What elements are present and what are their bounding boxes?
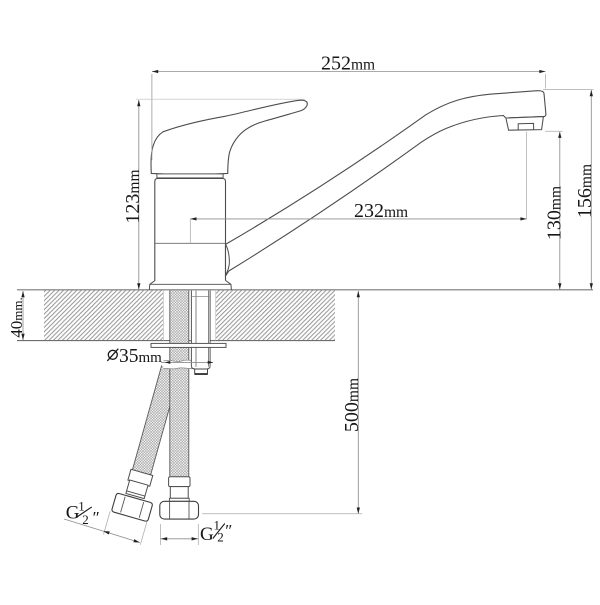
svg-text:500mm: 500mm (341, 378, 363, 432)
svg-text:232mm: 232mm (354, 200, 408, 222)
svg-text:G: G (200, 524, 214, 545)
svg-text:″: ″ (225, 521, 232, 540)
svg-text:123mm: 123mm (122, 169, 144, 223)
svg-text:40mm.: 40mm. (7, 297, 26, 337)
svg-text:″: ″ (93, 508, 100, 527)
svg-text:252mm: 252mm (321, 53, 375, 75)
svg-text:35mm: 35mm (119, 346, 162, 367)
svg-text:156mm: 156mm (574, 164, 596, 218)
svg-text:2: 2 (217, 530, 224, 545)
svg-text:130mm: 130mm (544, 186, 566, 240)
svg-text:2: 2 (82, 512, 89, 527)
